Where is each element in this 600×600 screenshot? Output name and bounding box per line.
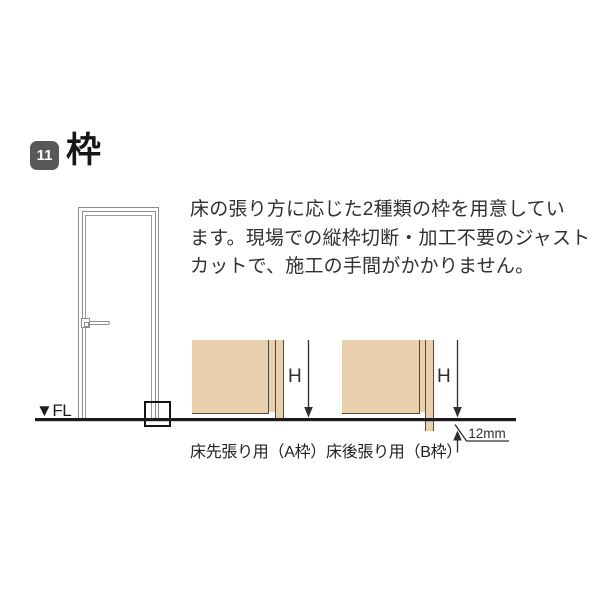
door-handle-lever: [89, 321, 110, 326]
floor-line: [35, 418, 516, 421]
description-line: 床の張り方に応じた2種類の枠を用意してい: [190, 196, 590, 225]
diagram-a-caption: 床先張り用（A枠）: [190, 438, 326, 462]
diagram-a-height-label: H: [288, 366, 302, 388]
diagram-a-wall-section: [192, 340, 269, 414]
diagram-b-wall-section: [342, 340, 420, 414]
diagram-b-frame-strip: [425, 340, 434, 431]
description-paragraph: 床の張り方に応じた2種類の枠を用意してい ます。現場での縦枠切断・加工不要のジャ…: [190, 196, 590, 282]
diagram-a-down-arrow-icon: [304, 407, 313, 418]
diagram-b-offset-label: 12mm: [465, 426, 509, 441]
detail-callout-box: [144, 401, 171, 427]
section-number-badge: 11: [30, 141, 59, 170]
description-line: カットで、施工の手間がかかりません。: [190, 253, 590, 282]
door-panel: [85, 215, 152, 419]
diagram-a-frame-strip: [275, 340, 284, 418]
catalog-page: 11 枠 床の張り方に応じた2種類の枠を用意してい ます。現場での縦枠切断・加工…: [0, 0, 600, 600]
page-title: 枠: [66, 128, 101, 174]
diagram-b-down-arrow-icon: [453, 407, 462, 418]
diagram-b-caption: 床後張り用（B枠）: [326, 438, 462, 462]
diagram-b-height-label: H: [437, 366, 451, 388]
description-line: ます。現場での縦枠切断・加工不要のジャスト: [190, 225, 590, 254]
floor-level-label: ▼FL: [36, 401, 71, 421]
